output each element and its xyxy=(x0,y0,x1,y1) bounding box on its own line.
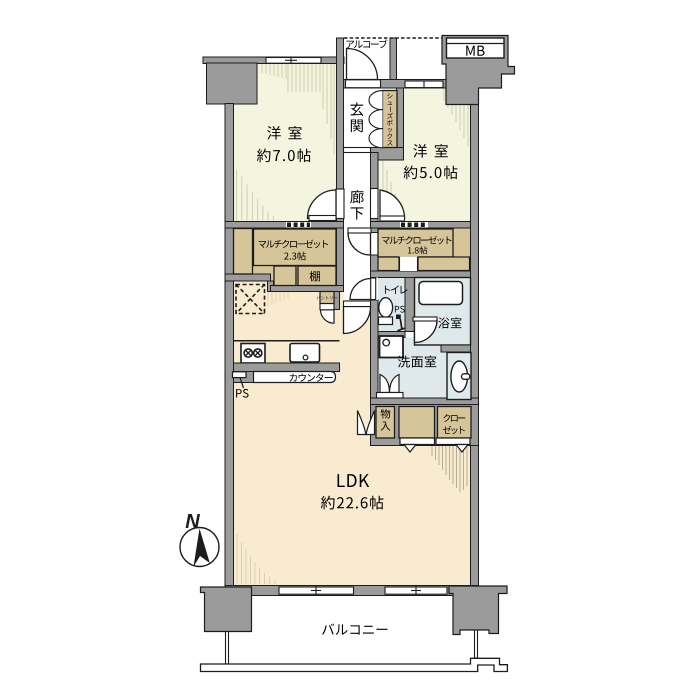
svg-text:N: N xyxy=(185,511,200,533)
